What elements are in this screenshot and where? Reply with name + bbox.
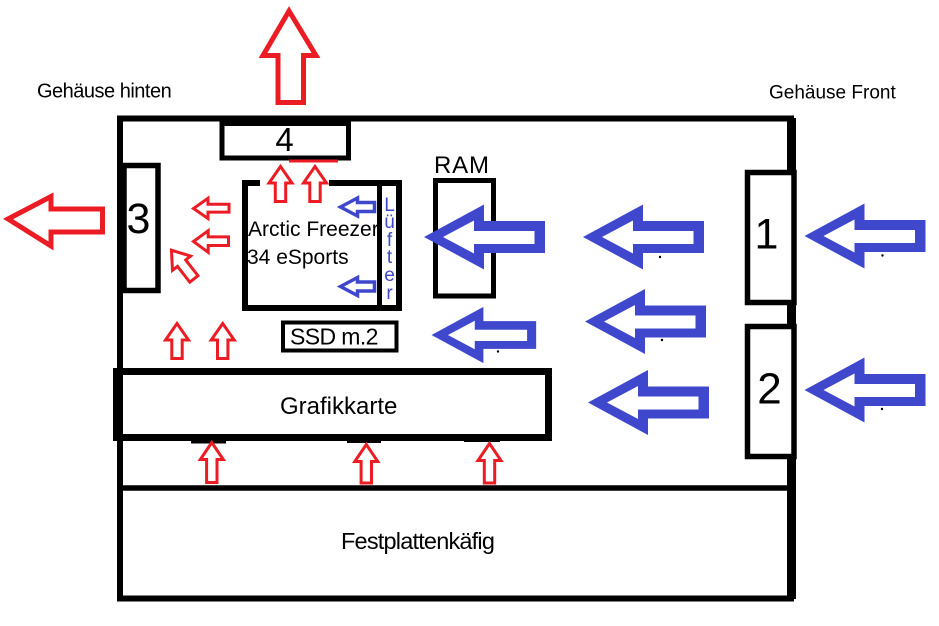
svg-text:Arctic Freezer: Arctic Freezer [248,218,379,241]
svg-text:SSD m.2: SSD m.2 [290,324,378,350]
svg-text:Grafikkarte: Grafikkarte [280,393,397,420]
svg-text:RAM: RAM [434,152,490,179]
svg-text:Gehäuse Front: Gehäuse Front [769,83,896,104]
svg-text:Festplattenkäfig: Festplattenkäfig [341,528,494,554]
svg-text:34 eSports: 34 eSports [247,246,349,269]
svg-text:3: 3 [127,195,151,243]
svg-text:r: r [386,283,393,304]
svg-text:1: 1 [755,211,779,259]
svg-text:2: 2 [757,365,781,414]
svg-text:Gehäuse hinten: Gehäuse hinten [37,81,171,103]
svg-text:4: 4 [275,121,293,158]
